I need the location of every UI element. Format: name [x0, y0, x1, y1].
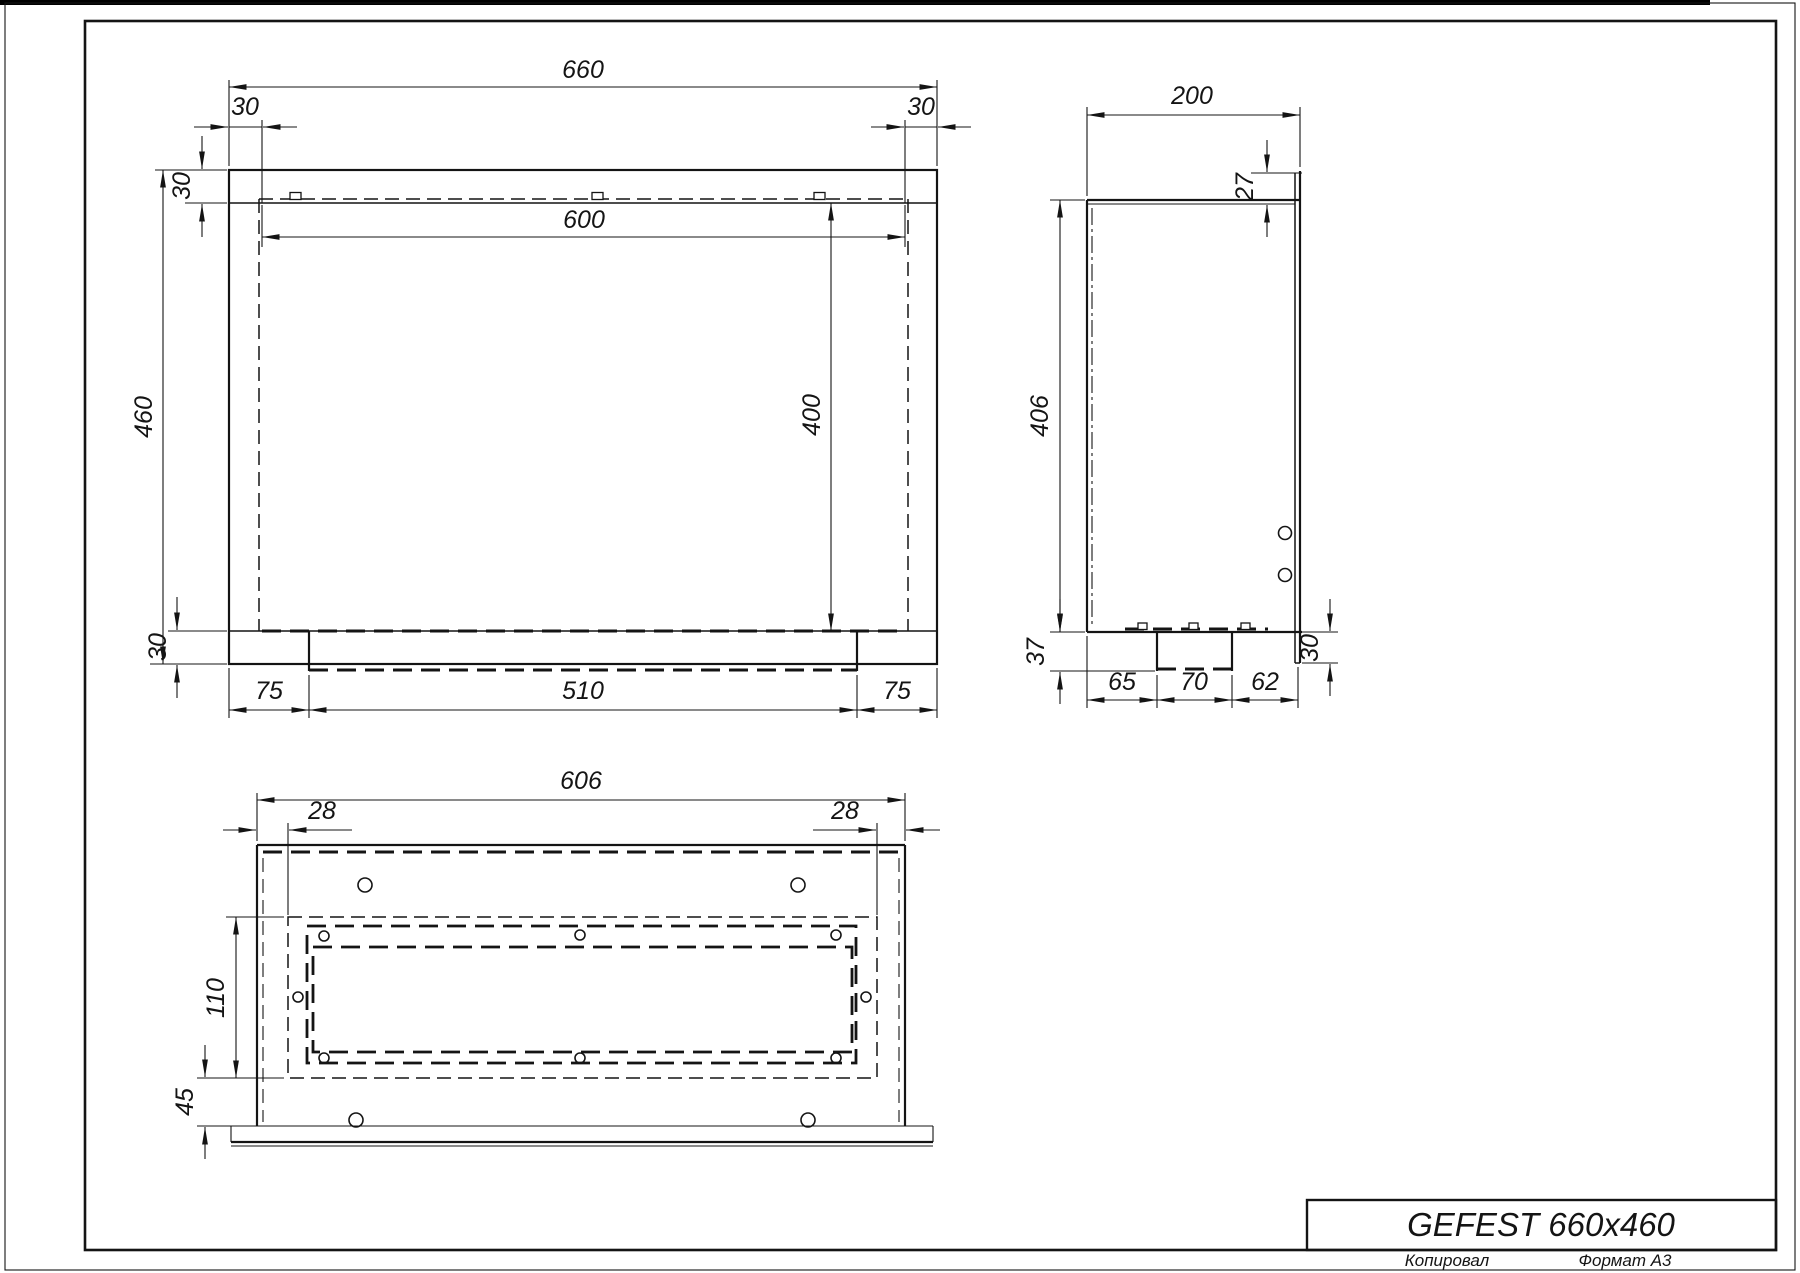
hole — [1279, 569, 1292, 582]
dim-front-total-width: 660 — [562, 56, 604, 84]
dim-front-margin-right: 30 — [907, 93, 935, 121]
dim-side-top-lip: 27 — [1231, 172, 1259, 202]
hole — [293, 992, 303, 1002]
dim-side-tab-depth: 37 — [1022, 637, 1050, 666]
sheet-inner-frame — [85, 21, 1776, 1250]
dim-bottom-margin-right: 28 — [830, 797, 859, 825]
dim-side-rear-segment: 62 — [1251, 668, 1279, 696]
notch — [592, 193, 603, 200]
hole — [861, 992, 871, 1002]
drawing-sheet: 660 30 30 30 600 460 400 30 75 510 75 — [0, 0, 1800, 1273]
dim-bottom-flange-width: 606 — [560, 767, 602, 795]
dim-front-margin-left: 30 — [231, 93, 259, 121]
front-view: 660 30 30 30 600 460 400 30 75 510 75 — [130, 56, 971, 718]
notch — [814, 193, 825, 200]
dim-side-depth: 200 — [1170, 82, 1213, 110]
drawing-title: GEFEST 660x460 — [1407, 1206, 1675, 1243]
hole — [575, 1053, 585, 1063]
bottom-view: 606 28 28 110 45 — [171, 767, 940, 1159]
hole — [349, 1113, 363, 1127]
dim-front-top-flange: 30 — [168, 172, 196, 200]
notch — [1241, 623, 1250, 630]
dim-front-tray-offset-left: 75 — [255, 677, 283, 705]
dim-side-tab-width: 70 — [1180, 668, 1208, 696]
format-label: Формат А3 — [1578, 1251, 1672, 1270]
hole — [791, 878, 805, 892]
sheet-footer: Копировал Формат А3 — [1405, 1251, 1672, 1270]
title-block: GEFEST 660x460 — [1307, 1200, 1776, 1250]
dim-front-opening-height: 400 — [798, 394, 826, 436]
drawing-canvas: 660 30 30 30 600 460 400 30 75 510 75 — [0, 0, 1800, 1273]
notch — [1189, 623, 1198, 630]
dim-front-tray-offset-right: 75 — [883, 677, 911, 705]
hole — [801, 1113, 815, 1127]
dim-bottom-margin-left: 28 — [307, 797, 336, 825]
hole — [1279, 527, 1292, 540]
hole — [319, 931, 329, 941]
hole — [831, 930, 841, 940]
notch — [1138, 623, 1147, 630]
copied-label: Копировал — [1405, 1251, 1490, 1270]
notch — [290, 193, 301, 200]
dim-side-front-segment: 65 — [1108, 668, 1136, 696]
side-view: 200 27 406 37 65 70 62 30 — [1022, 82, 1338, 708]
dim-side-flange-drop: 30 — [1296, 634, 1324, 662]
sheet-outer-border — [5, 3, 1795, 1270]
dim-front-opening-width: 600 — [563, 206, 605, 234]
sheet-frame — [0, 0, 1795, 1270]
dim-bottom-front-offset: 45 — [171, 1088, 199, 1116]
bottom-slot-inner-dashed — [313, 947, 852, 1052]
hole — [358, 878, 372, 892]
dim-bottom-slot-depth: 110 — [202, 978, 230, 1018]
dim-front-tray-width: 510 — [562, 677, 604, 705]
hole — [575, 930, 585, 940]
dim-side-height: 406 — [1026, 395, 1054, 437]
dim-front-total-height: 460 — [130, 396, 158, 438]
dim-front-bottom-flange: 30 — [144, 633, 172, 661]
hole — [831, 1053, 841, 1063]
hole — [319, 1053, 329, 1063]
